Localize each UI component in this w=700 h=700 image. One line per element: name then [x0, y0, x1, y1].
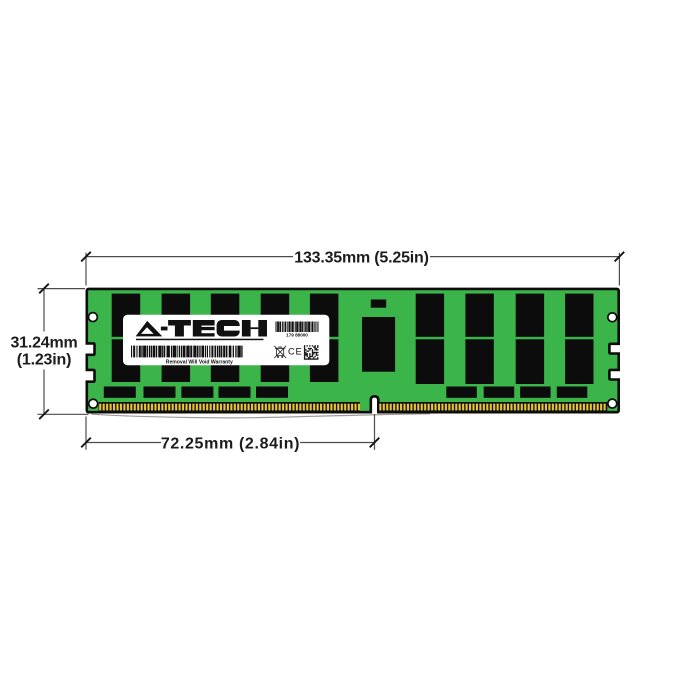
svg-text:(1.23in): (1.23in): [17, 351, 71, 368]
svg-text:72.25mm (2.84in): 72.25mm (2.84in): [161, 435, 300, 452]
svg-text:179 88000: 179 88000: [286, 333, 308, 338]
svg-text:Removal Will Void Warranty: Removal Will Void Warranty: [166, 359, 233, 365]
svg-text:CE: CE: [288, 347, 303, 357]
svg-text:133.35mm (5.25in): 133.35mm (5.25in): [294, 249, 428, 266]
svg-text:31.24mm: 31.24mm: [10, 334, 77, 351]
